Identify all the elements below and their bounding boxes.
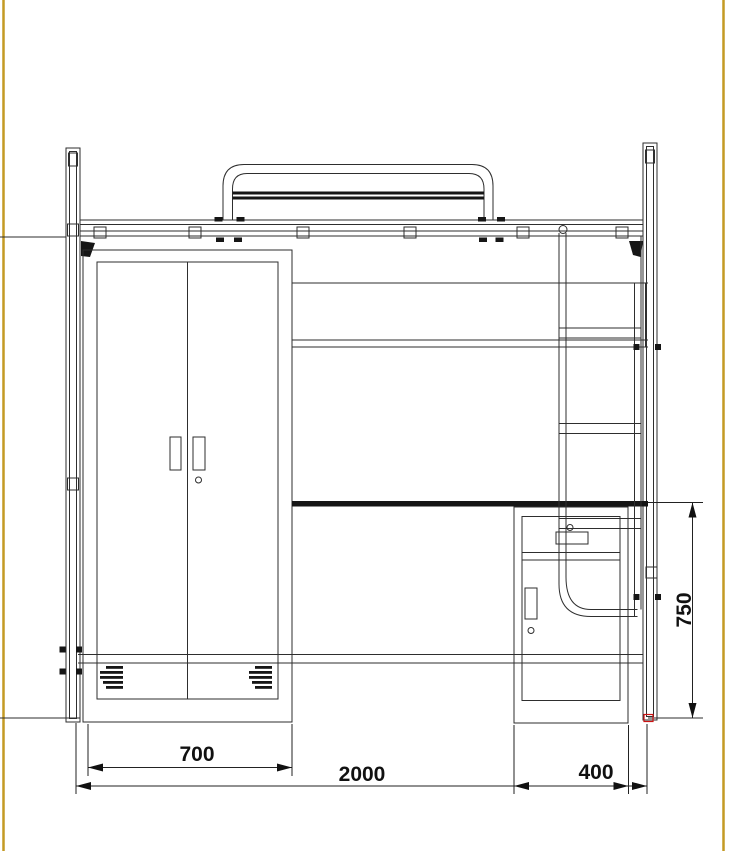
- left-post-inner-line: [70, 152, 77, 719]
- junction-dot: [634, 344, 640, 350]
- rail-clamp: [237, 217, 245, 222]
- junction-dot: [655, 344, 661, 350]
- dimension-label-2000: 2000: [339, 763, 386, 786]
- desk-top-surface: [292, 501, 648, 507]
- book-shelf: [292, 283, 648, 347]
- dimension-700: 700: [88, 724, 292, 776]
- vent-bar: [106, 686, 123, 689]
- rail-clamp: [496, 238, 504, 243]
- junction-dot: [76, 647, 82, 653]
- rail-clamp: [234, 238, 242, 243]
- desk-cabinet: [514, 507, 628, 723]
- frame-junction-dots: [60, 344, 662, 675]
- guard-rail-dark-band: [233, 197, 485, 200]
- junction-dot: [60, 647, 66, 653]
- dimension-label-400: 400: [578, 761, 613, 784]
- ladder-left-rail-inner: [566, 233, 638, 610]
- wardrobe-vent-left: [100, 666, 123, 689]
- vent-bar: [255, 666, 272, 669]
- right-post-inner-line: [647, 147, 654, 717]
- drawer-handle: [556, 532, 588, 544]
- vent-bar: [249, 671, 272, 674]
- rail-clamp: [497, 217, 505, 222]
- dimension-arrow-right: [614, 782, 629, 790]
- dimension-arrow-bottom: [689, 703, 697, 718]
- vent-bar: [100, 671, 123, 674]
- cabinet-door-keyhole: [528, 628, 534, 634]
- dimension-arrow-left: [88, 764, 103, 772]
- rail-clamp: [478, 217, 486, 222]
- vent-bar: [252, 681, 272, 684]
- wardrobe: [83, 250, 292, 722]
- right-post-bracket: [646, 567, 657, 578]
- ladder-rung: [559, 424, 641, 434]
- ladder-left-rail-outer: [559, 233, 638, 617]
- ladder-rung: [559, 328, 641, 338]
- wardrobe-right-door-handle: [193, 437, 205, 470]
- guard-rail-dark-band: [233, 192, 485, 195]
- right-bed-post: [643, 143, 657, 722]
- ladder-rung: [559, 519, 641, 529]
- rail-clamp: [215, 217, 223, 222]
- junction-dot: [76, 669, 82, 675]
- vent-bar: [255, 686, 272, 689]
- dimension-label-700: 700: [179, 743, 214, 766]
- wardrobe-vent-right: [249, 666, 272, 689]
- technical-drawing-page: 700 2000 400 750: [0, 0, 730, 851]
- dimension-arrow-right: [632, 782, 647, 790]
- dimension-2000: 2000: [76, 723, 647, 794]
- wardrobe-keyhole: [196, 477, 202, 483]
- vent-bar: [106, 666, 123, 669]
- guard-rail: [215, 165, 506, 243]
- dimension-arrow-top: [689, 503, 697, 518]
- dimension-400: 400: [514, 725, 629, 794]
- vent-bar: [103, 681, 123, 684]
- rail-clamp: [479, 238, 487, 243]
- dimension-arrow-left: [514, 782, 529, 790]
- ladder: [559, 226, 641, 617]
- cabinet-outline: [514, 507, 628, 723]
- loft-bed-elevation-drawing: 700 2000 400 750: [0, 0, 730, 851]
- rail-clamp: [216, 238, 224, 243]
- junction-dot: [655, 594, 661, 600]
- drawer-keyhole: [567, 525, 573, 531]
- dimension-750: 750: [648, 503, 703, 719]
- dimension-arrow-right: [277, 764, 292, 772]
- left-bed-post: [66, 148, 80, 722]
- dimension-arrow-left: [76, 782, 91, 790]
- junction-dot: [634, 594, 640, 600]
- left-post-outline: [66, 148, 80, 722]
- cabinet-door-handle: [525, 588, 537, 619]
- junction-dot: [60, 669, 66, 675]
- right-post-outline: [643, 143, 657, 720]
- dimension-label-750: 750: [673, 592, 696, 627]
- wardrobe-left-door-handle: [170, 437, 181, 470]
- vent-bar: [249, 676, 272, 679]
- ladder-top-bolt: [559, 226, 567, 234]
- vent-bar: [100, 676, 123, 679]
